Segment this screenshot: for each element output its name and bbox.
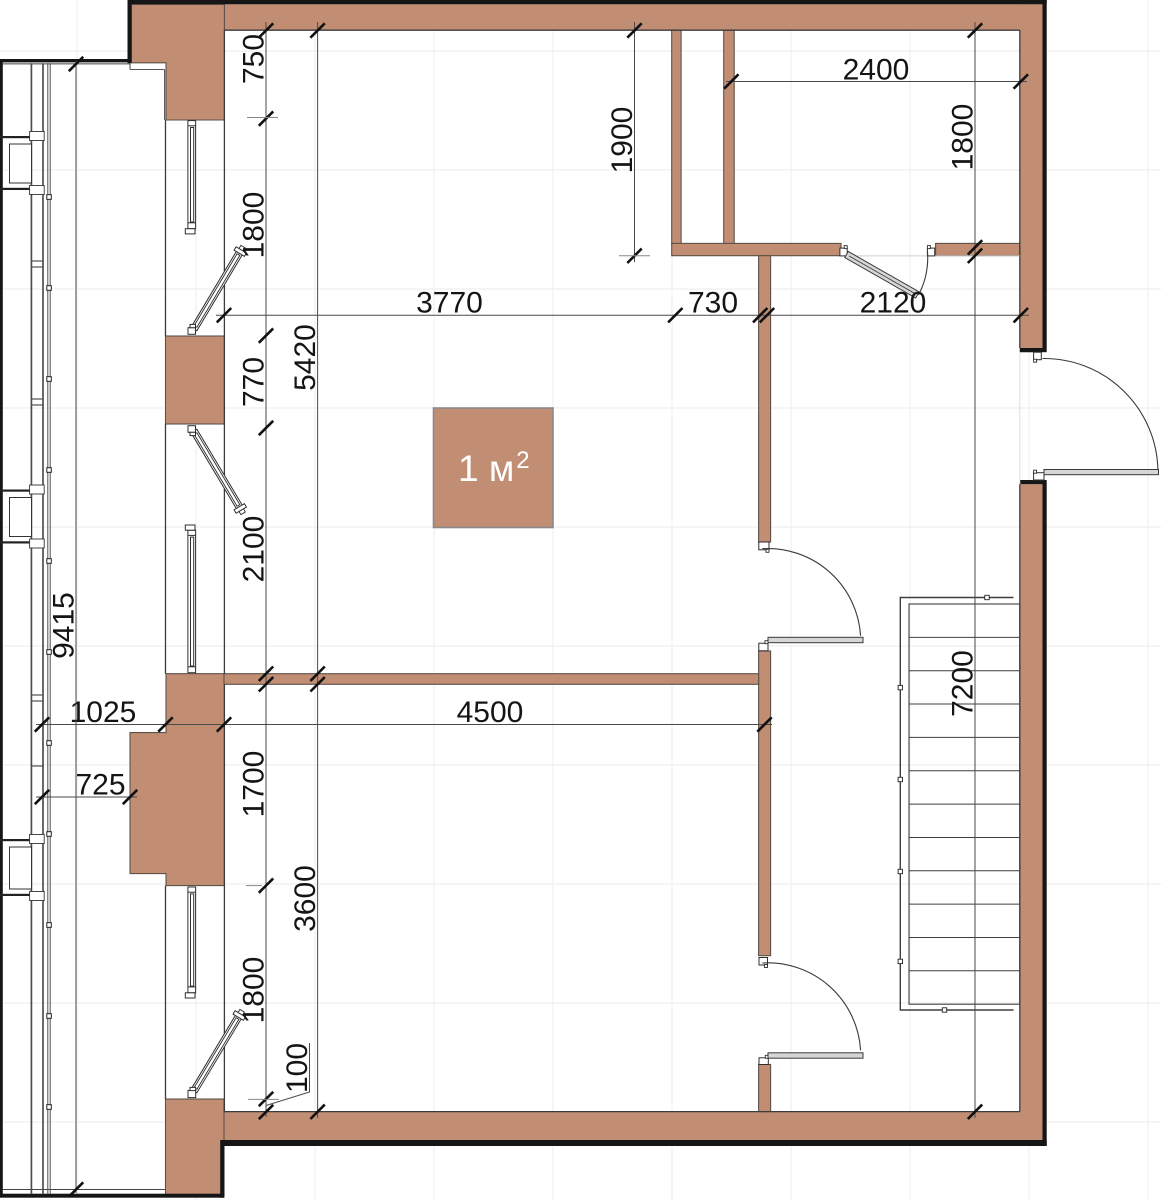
svg-text:4500: 4500: [457, 696, 524, 729]
svg-text:730: 730: [688, 287, 738, 320]
svg-text:1700: 1700: [238, 751, 271, 818]
svg-text:2400: 2400: [843, 54, 910, 87]
svg-text:1025: 1025: [70, 696, 137, 729]
svg-text:100: 100: [281, 1043, 314, 1093]
svg-text:7200: 7200: [947, 650, 980, 717]
svg-text:5420: 5420: [289, 324, 322, 391]
svg-text:1900: 1900: [606, 107, 639, 174]
svg-text:3770: 3770: [416, 287, 483, 320]
svg-text:1800: 1800: [238, 192, 271, 259]
svg-text:725: 725: [75, 769, 125, 802]
svg-text:2100: 2100: [238, 516, 271, 583]
svg-text:9415: 9415: [48, 592, 81, 659]
svg-text:1800: 1800: [947, 104, 980, 171]
svg-text:3600: 3600: [289, 865, 322, 932]
svg-text:750: 750: [238, 34, 271, 84]
svg-text:1800: 1800: [238, 957, 271, 1024]
svg-text:770: 770: [238, 357, 271, 407]
svg-text:2120: 2120: [860, 287, 927, 320]
